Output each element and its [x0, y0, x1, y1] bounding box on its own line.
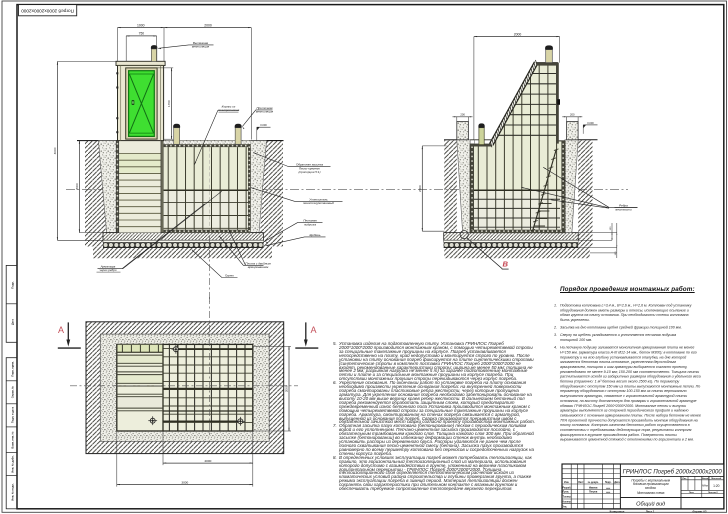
- svg-text:3000: 3000: [181, 480, 188, 484]
- svg-text:Листов 2: Листов 2: [708, 492, 718, 494]
- svg-text:Подп.: Подп.: [605, 482, 612, 484]
- svg-text:№ докум.: № докум.: [588, 481, 599, 484]
- svg-text:Разраб.: Разраб.: [562, 486, 571, 489]
- svg-text:через ребро: через ребро: [99, 268, 116, 272]
- svg-text:Щебень: Щебень: [309, 233, 320, 237]
- svg-text:подушка: подушка: [304, 222, 316, 226]
- svg-text:Подп. и дата: Подп. и дата: [11, 406, 15, 423]
- svg-text:200: 200: [460, 112, 465, 116]
- svg-text:армированием: армированием: [248, 265, 269, 269]
- svg-text:Лит.: Лит.: [682, 478, 687, 480]
- svg-text:Лист: Лист: [689, 492, 695, 494]
- svg-text:(пропорция 5:1): (пропорция 5:1): [299, 170, 321, 174]
- svg-text:Дата: Дата: [614, 482, 620, 484]
- svg-text:Инв. № подл.: Инв. № подл.: [11, 483, 15, 500]
- svg-text:2000: 2000: [285, 385, 289, 392]
- svg-text:1700: 1700: [167, 100, 171, 107]
- svg-text:1000: 1000: [137, 23, 145, 27]
- svg-text:2000: 2000: [418, 185, 422, 192]
- svg-text:Монтажная схема: Монтажная схема: [637, 491, 665, 495]
- svg-text:Т.контр.: Т.контр.: [563, 497, 572, 499]
- svg-text:Справ. №: Справ. №: [11, 386, 15, 399]
- svg-text:А: А: [310, 325, 316, 335]
- svg-text:2000: 2000: [75, 183, 79, 190]
- svg-text:▬▬: ▬▬: [606, 487, 610, 489]
- svg-text:4000: 4000: [53, 147, 57, 154]
- svg-text:Лист 1: Лист 1: [646, 509, 655, 513]
- svg-text:полипропилена: полипропилена: [218, 108, 240, 112]
- svg-text:А: А: [58, 325, 64, 335]
- svg-text:0.000: 0.000: [260, 123, 267, 127]
- svg-text:Формат А3: Формат А3: [693, 509, 708, 513]
- svg-text:0.000: 0.000: [587, 121, 594, 125]
- svg-text:2000: 2000: [514, 32, 522, 36]
- svg-text:2000: 2000: [204, 23, 212, 27]
- svg-text:Иванов: Иванов: [589, 487, 598, 489]
- svg-text:Утв.: Утв.: [562, 507, 567, 509]
- svg-text:жесткости: жесткости: [614, 208, 632, 212]
- svg-text:ГРИНЛОС Погреб 2000х2000х2000: ГРИНЛОС Погреб 2000х2000х2000: [623, 470, 723, 476]
- svg-text:1:20: 1:20: [713, 484, 720, 488]
- svg-text:2000: 2000: [204, 459, 211, 463]
- svg-text:вентиляция: вентиляция: [192, 45, 210, 49]
- svg-text:Н.контр.: Н.контр.: [562, 502, 572, 504]
- svg-text:входом.: входом.: [645, 486, 657, 490]
- svg-text:200: 200: [570, 112, 575, 116]
- svg-text:Копировал: Копировал: [610, 509, 625, 513]
- svg-text:Петров: Петров: [589, 492, 598, 494]
- svg-text:Общий вид: Общий вид: [636, 501, 665, 508]
- svg-text:Изм.: Изм.: [564, 482, 569, 484]
- svg-text:Погреб 2000х2000х2000: Погреб 2000х2000х2000: [21, 8, 74, 13]
- svg-text:Лист: Лист: [578, 482, 584, 484]
- svg-text:Масса: Масса: [702, 478, 710, 480]
- svg-text:Инв. № дубл.: Инв. № дубл.: [11, 455, 15, 472]
- svg-text:Перв. прим.: Перв. прим.: [11, 361, 15, 377]
- svg-text:В: В: [503, 260, 509, 269]
- svg-text:вентиляция: вентиляция: [256, 110, 274, 114]
- svg-text:б/Нм: б/Нм: [702, 484, 708, 488]
- svg-text:▬▬: ▬▬: [606, 492, 610, 494]
- svg-text:750: 750: [139, 32, 145, 36]
- svg-text:Масштаб: Масштаб: [711, 477, 721, 480]
- svg-text:Пров.: Пров.: [563, 492, 570, 494]
- svg-text:Грунт: Грунт: [225, 274, 234, 278]
- svg-text:Дата: Дата: [11, 318, 15, 325]
- svg-text:пенополиуретановый: пенополиуретановый: [303, 201, 334, 205]
- svg-text:Подп.: Подп.: [11, 281, 15, 289]
- svg-text:Взам. инв. №: Взам. инв. №: [11, 431, 15, 448]
